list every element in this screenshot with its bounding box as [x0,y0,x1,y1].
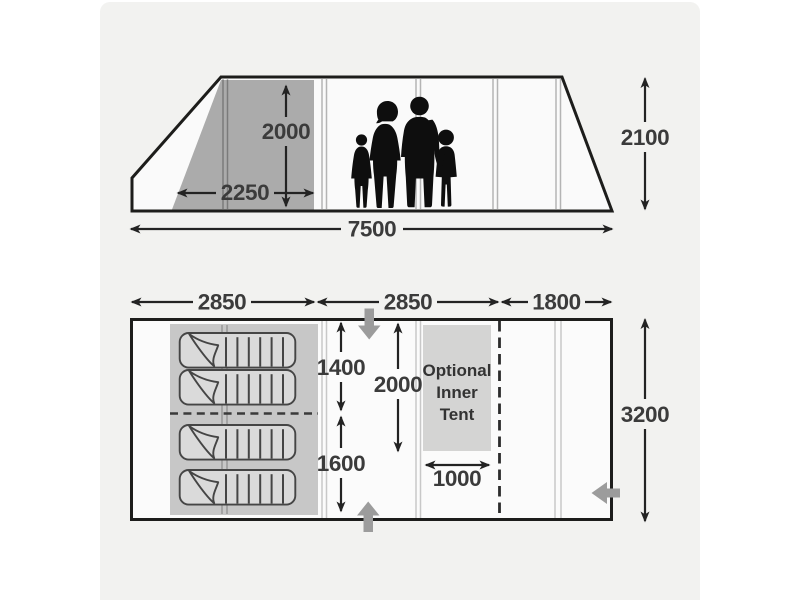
svg-text:2850: 2850 [198,290,246,315]
svg-text:7500: 7500 [348,217,396,242]
svg-text:Tent: Tent [440,405,475,424]
svg-text:1400: 1400 [317,355,365,380]
svg-text:2250: 2250 [221,180,269,205]
svg-text:2000: 2000 [262,119,310,144]
svg-text:1800: 1800 [532,290,580,315]
svg-text:2000: 2000 [374,372,422,397]
svg-text:Inner: Inner [436,383,478,402]
svg-text:1600: 1600 [317,451,365,476]
svg-text:1000: 1000 [433,466,481,491]
svg-text:2100: 2100 [621,125,669,150]
svg-text:Optional: Optional [423,361,492,380]
svg-text:2850: 2850 [384,290,432,315]
svg-text:3200: 3200 [621,402,669,427]
